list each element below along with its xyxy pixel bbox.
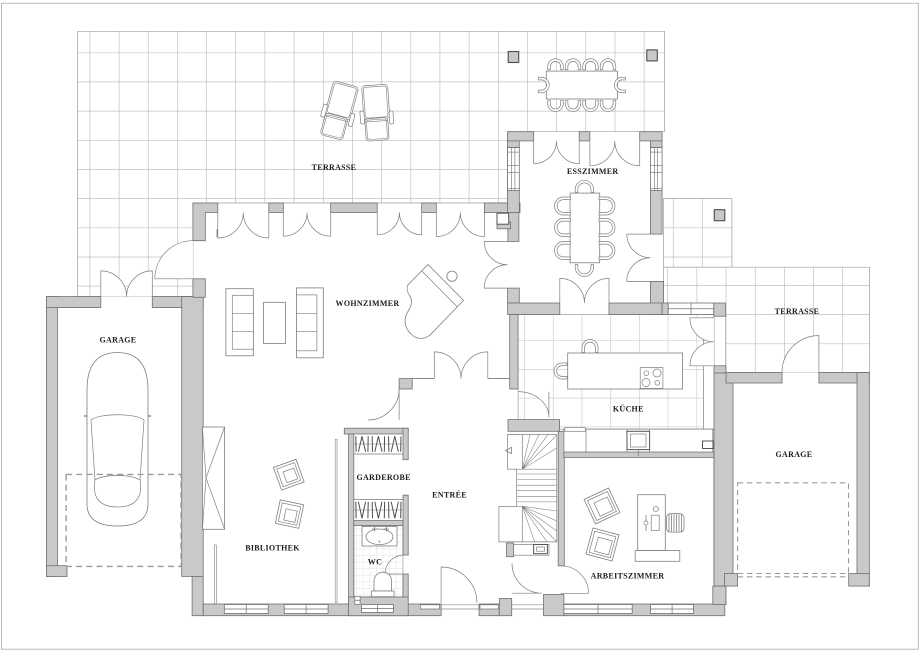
svg-text:ESSZIMMER: ESSZIMMER [567, 167, 619, 176]
svg-text:TERRASSE: TERRASSE [312, 163, 357, 172]
svg-text:GARDEROBE: GARDEROBE [356, 473, 410, 482]
svg-text:KÜCHE: KÜCHE [613, 405, 644, 414]
svg-text:BIBLIOTHEK: BIBLIOTHEK [245, 543, 300, 552]
svg-text:GARAGE: GARAGE [100, 335, 137, 344]
svg-text:WOHNZIMMER: WOHNZIMMER [336, 299, 400, 308]
svg-text:TERRASSE: TERRASSE [775, 307, 820, 316]
svg-text:ARBEITSZIMMER: ARBEITSZIMMER [591, 571, 665, 580]
svg-text:ENTRÉE: ENTRÉE [432, 490, 467, 500]
svg-text:WC: WC [368, 558, 382, 567]
svg-text:GARAGE: GARAGE [776, 450, 813, 459]
